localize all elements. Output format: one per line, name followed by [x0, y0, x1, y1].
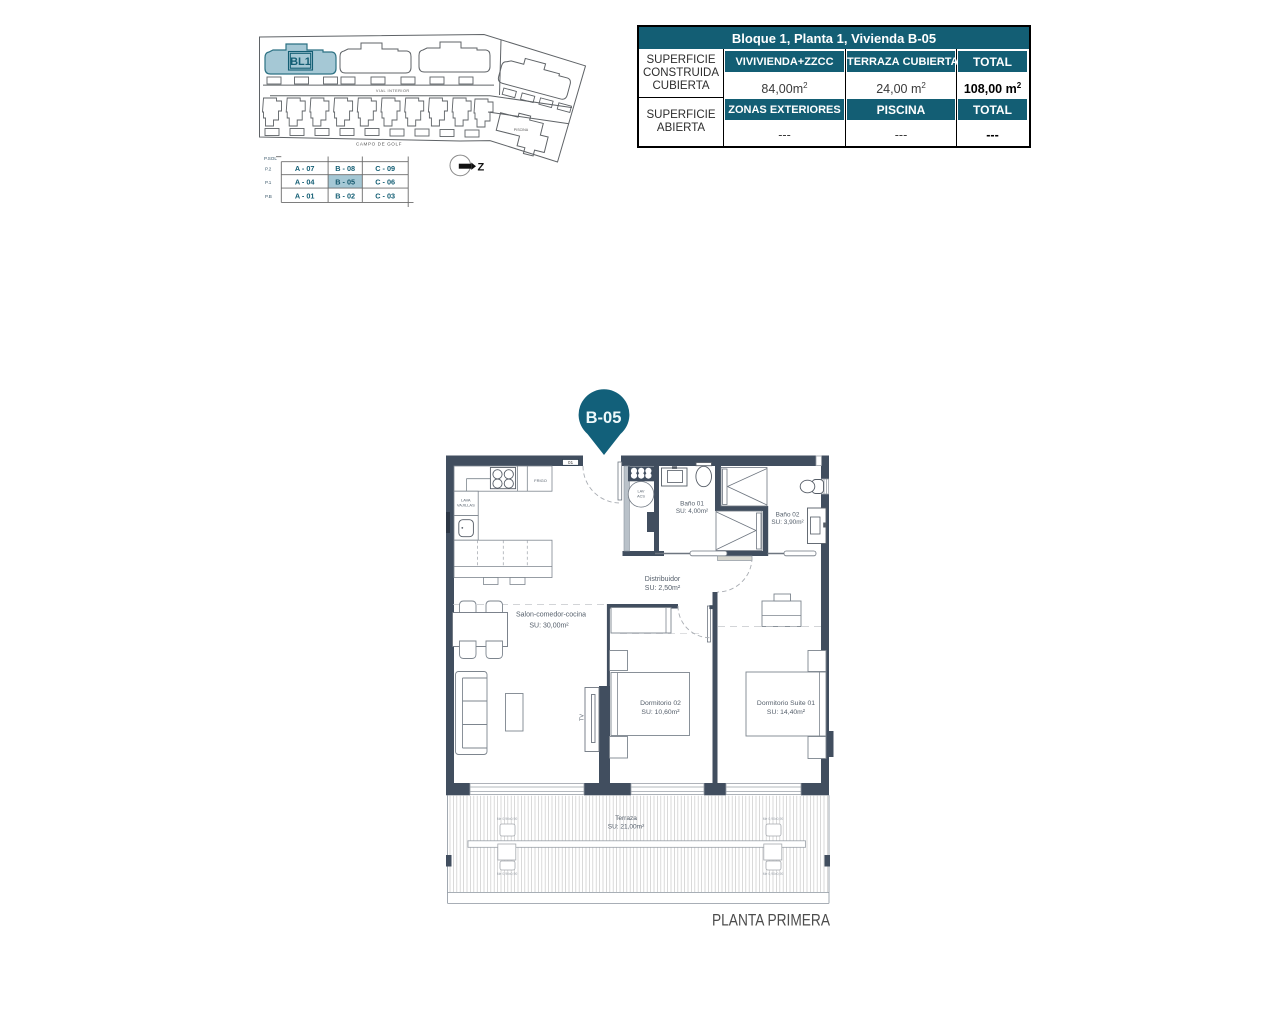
svg-text:SU: 3,90m²: SU: 3,90m²	[771, 519, 803, 526]
svg-text:A - 04: A - 04	[295, 177, 316, 186]
svg-text:C - 06: C - 06	[375, 177, 395, 186]
svg-text:Me 0,90x0,90: Me 0,90x0,90	[497, 817, 518, 821]
svg-text:TV: TV	[580, 714, 586, 721]
svg-text:B - 05: B - 05	[335, 177, 355, 186]
svg-text:P.B: P.B	[265, 194, 272, 199]
svg-text:Baño 01: Baño 01	[680, 501, 704, 508]
svg-text:Me 0,90x0,90: Me 0,90x0,90	[763, 872, 784, 876]
svg-text:SU: 30,00m²: SU: 30,00m²	[529, 623, 569, 630]
svg-text:Distribuidor: Distribuidor	[645, 576, 681, 583]
svg-text:BL1: BL1	[290, 56, 311, 68]
svg-text:CAMPO DE GOLF: CAMPO DE GOLF	[356, 141, 402, 146]
svg-text:B - 08: B - 08	[335, 164, 355, 173]
svg-text:Baño 02: Baño 02	[776, 512, 800, 519]
svg-text:Dormitorio Suite 01: Dormitorio Suite 01	[757, 700, 815, 707]
svg-text:SU: 21,00m²: SU: 21,00m²	[608, 824, 645, 831]
svg-text:VIAL INTERIOR: VIAL INTERIOR	[376, 89, 410, 93]
svg-text:A - 01: A - 01	[295, 192, 315, 201]
svg-text:B-05: B-05	[586, 409, 622, 427]
svg-text:Salon-comedor-cocina: Salon-comedor-cocina	[516, 612, 586, 619]
svg-text:PISCINA: PISCINA	[514, 128, 529, 132]
svg-text:SU: 2,50m²: SU: 2,50m²	[645, 585, 681, 592]
svg-text:PLANTA PRIMERA: PLANTA PRIMERA	[712, 911, 831, 930]
svg-text:C - 03: C - 03	[375, 192, 395, 201]
svg-text:SU: 14,40m²: SU: 14,40m²	[767, 709, 806, 716]
svg-text:C - 09: C - 09	[375, 164, 395, 173]
svg-text:P.2: P.2	[265, 167, 272, 172]
svg-text:01: 01	[568, 460, 574, 466]
svg-text:FRIGO: FRIGO	[534, 478, 547, 483]
svg-text:ACS: ACS	[637, 495, 645, 499]
svg-text:Me 0,90x0,90: Me 0,90x0,90	[497, 872, 518, 876]
svg-text:Me 0,90x0,90: Me 0,90x0,90	[763, 817, 784, 821]
svg-text:A - 07: A - 07	[295, 164, 315, 173]
svg-text:B - 02: B - 02	[335, 192, 355, 201]
svg-text:P.SOL: P.SOL	[264, 156, 277, 161]
svg-text:Z: Z	[478, 161, 485, 173]
svg-text:Dormitorio 02: Dormitorio 02	[640, 700, 681, 707]
svg-text:P.1: P.1	[265, 180, 272, 185]
svg-text:VAJILLAS: VAJILLAS	[457, 503, 475, 508]
svg-text:SU: 10,60m²: SU: 10,60m²	[641, 709, 680, 716]
svg-text:SU: 4,00m²: SU: 4,00m²	[676, 508, 708, 515]
svg-text:LAV: LAV	[638, 490, 645, 494]
svg-text:Terraza: Terraza	[615, 815, 637, 822]
